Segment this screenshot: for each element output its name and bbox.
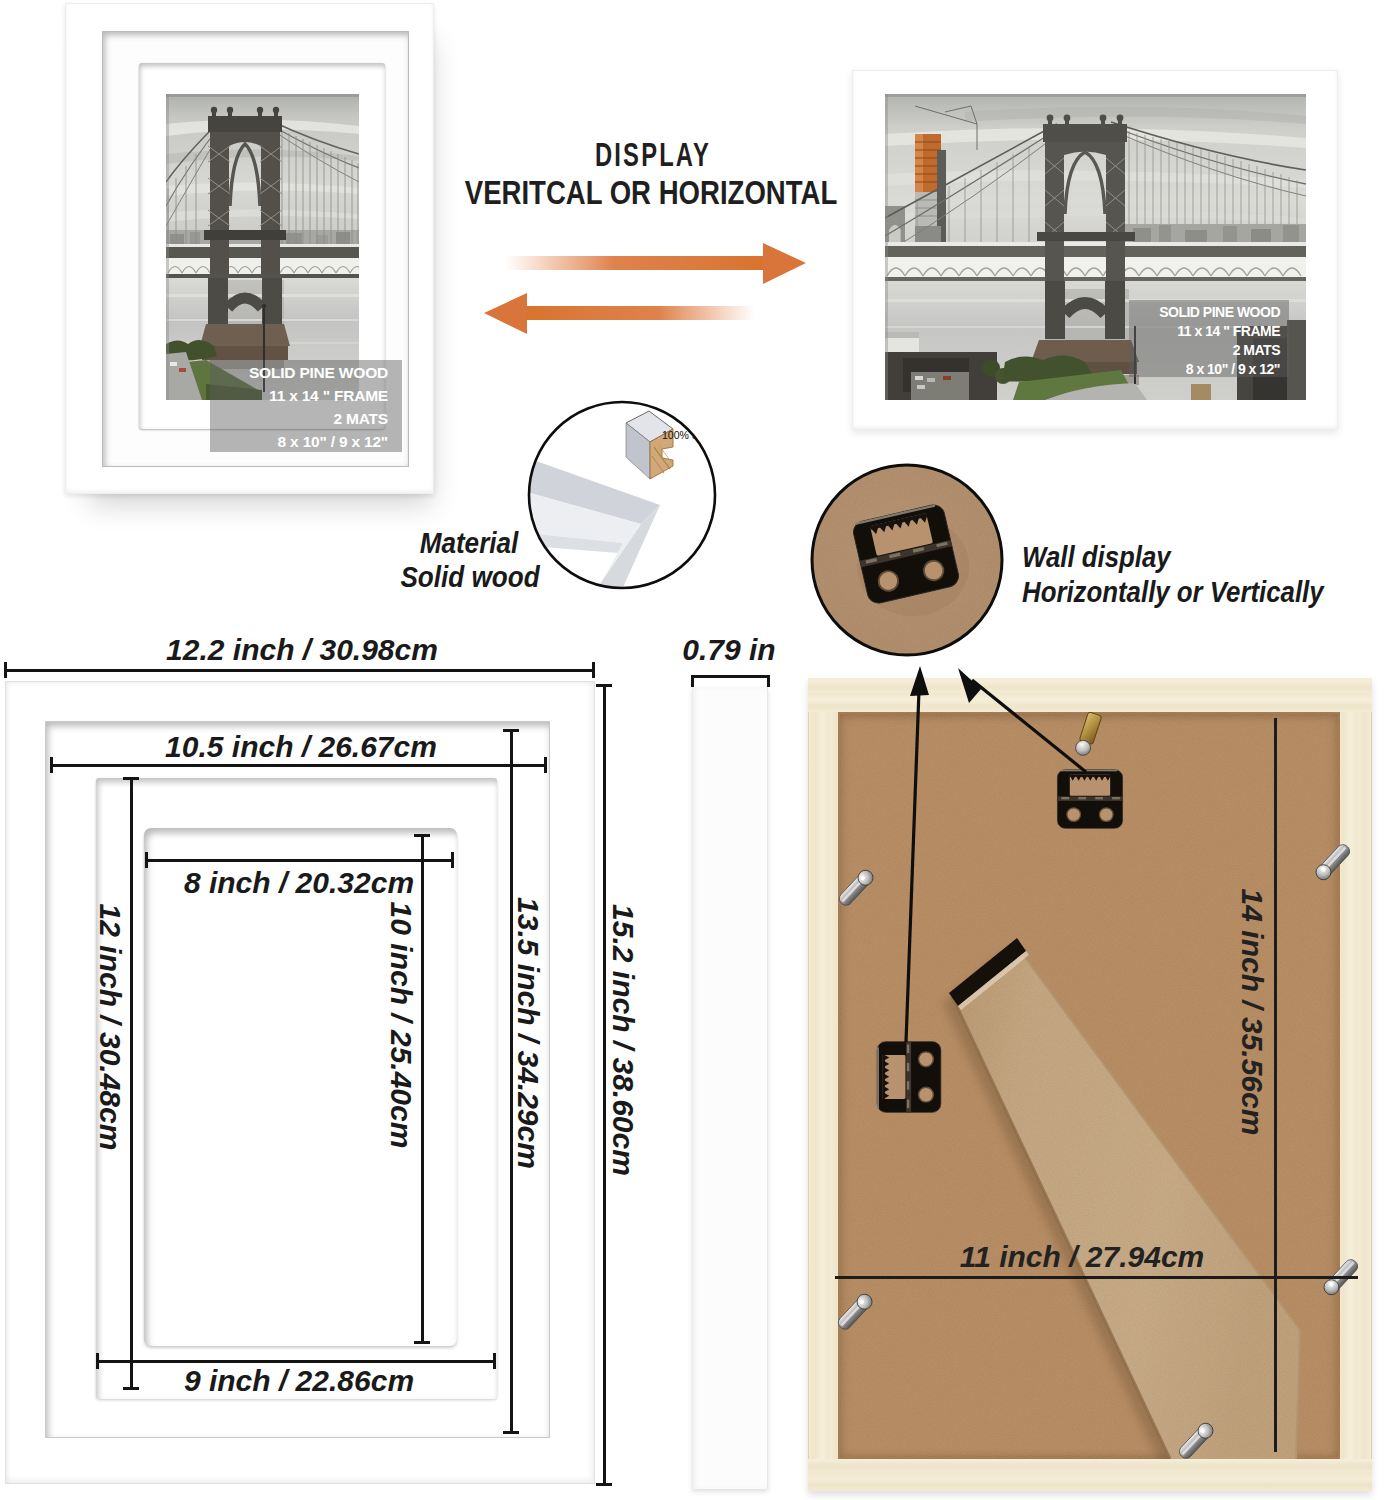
svg-text:100% So: 100% So: [662, 429, 705, 441]
